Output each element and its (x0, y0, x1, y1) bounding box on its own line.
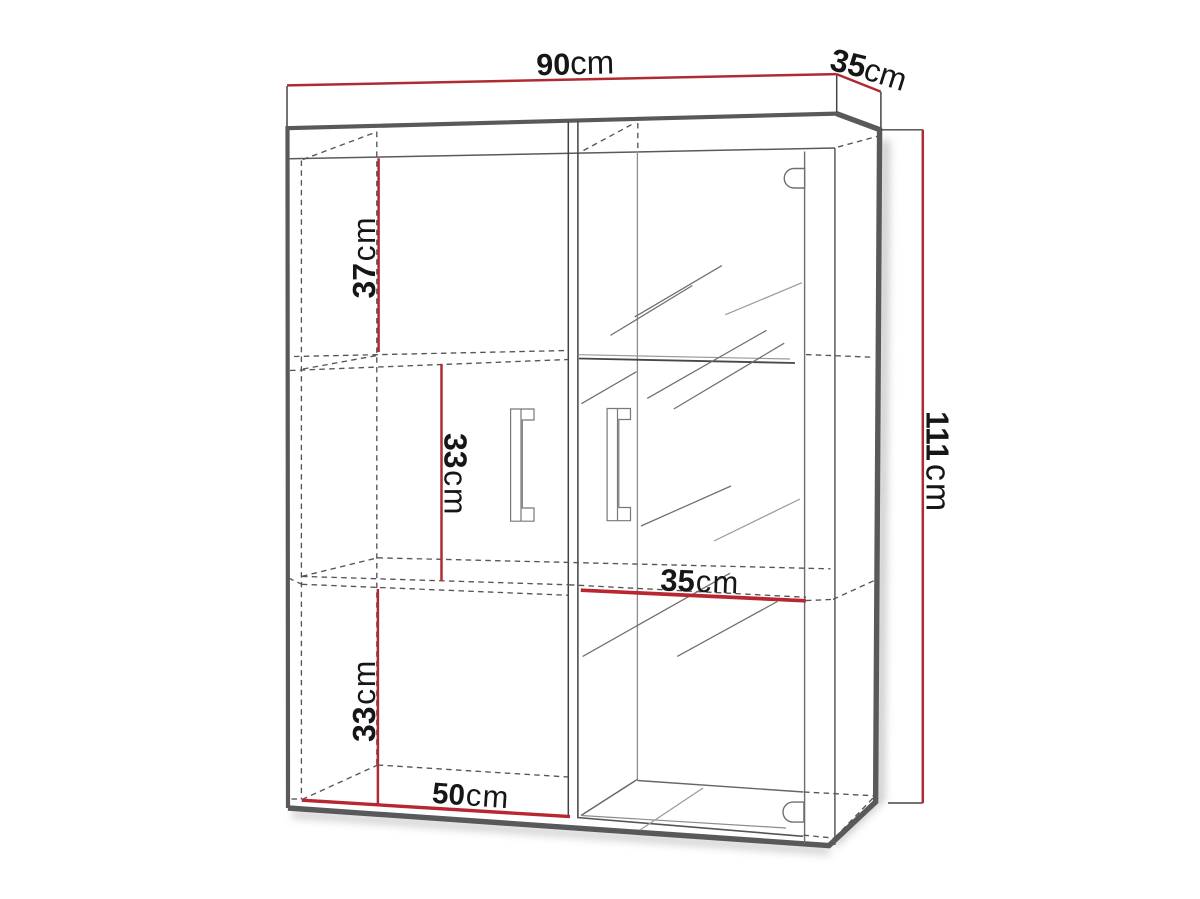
svg-text:50cm: 50cm (431, 775, 511, 815)
svg-text:33cm: 33cm (346, 659, 382, 742)
svg-text:33cm: 33cm (438, 433, 474, 516)
svg-text:35cm: 35cm (660, 563, 740, 601)
svg-text:90cm: 90cm (536, 43, 615, 82)
svg-text:37cm: 37cm (346, 216, 382, 299)
